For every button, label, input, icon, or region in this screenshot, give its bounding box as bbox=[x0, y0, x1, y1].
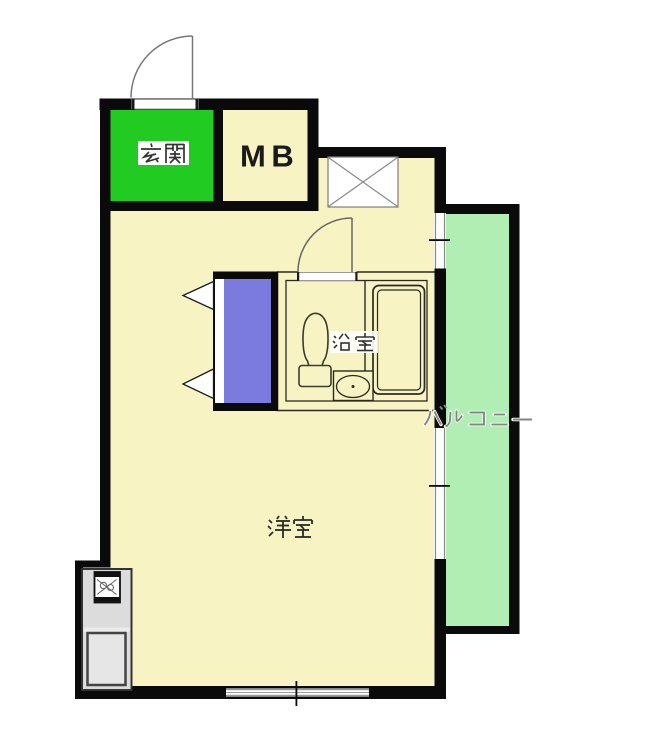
svg-text:MB: MB bbox=[240, 139, 299, 174]
